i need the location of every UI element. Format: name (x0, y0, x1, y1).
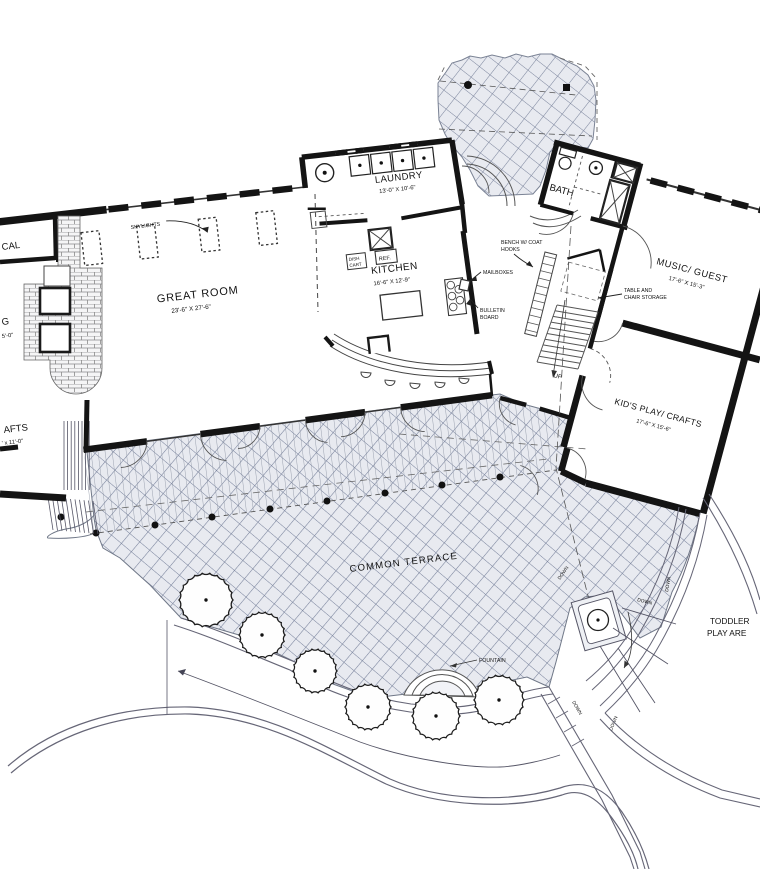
svg-text:HOOKS: HOOKS (501, 247, 520, 253)
svg-text:TABLE AND: TABLE AND (624, 288, 652, 294)
svg-text:PLAY ARE: PLAY ARE (707, 628, 747, 638)
svg-text:BOARD: BOARD (480, 315, 499, 321)
svg-text:BENCH W/ COAT: BENCH W/ COAT (501, 240, 543, 246)
svg-text:G: G (1, 316, 10, 328)
svg-text:BULLETIN: BULLETIN (480, 308, 505, 314)
svg-text:CAL: CAL (1, 240, 21, 253)
svg-text:CHAIR STORAGE: CHAIR STORAGE (624, 295, 667, 301)
svg-text:TODDLER: TODDLER (710, 616, 750, 626)
svg-text:MAILBOXES: MAILBOXES (483, 270, 514, 276)
svg-text:FOUNTAIN: FOUNTAIN (479, 658, 506, 664)
